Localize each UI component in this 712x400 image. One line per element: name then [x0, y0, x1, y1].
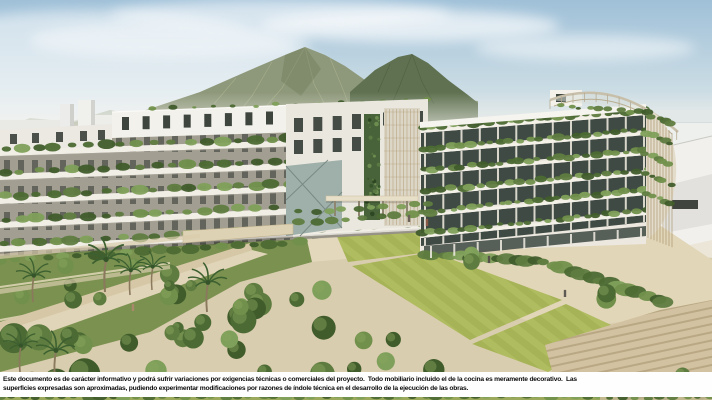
courtyard-pergola [326, 196, 418, 201]
disclaimer-line-2: superficies expresadas son aproximadas, … [0, 384, 712, 393]
architectural-rendering: Este documento es de carácter informativ… [0, 0, 712, 400]
disclaimer-bar: Este documento es de carácter informativ… [0, 372, 712, 397]
disclaimer-line-1: Este documento es de carácter informativ… [0, 372, 712, 384]
rendering-scene [0, 0, 712, 400]
vertical-garden-wall [364, 114, 380, 220]
